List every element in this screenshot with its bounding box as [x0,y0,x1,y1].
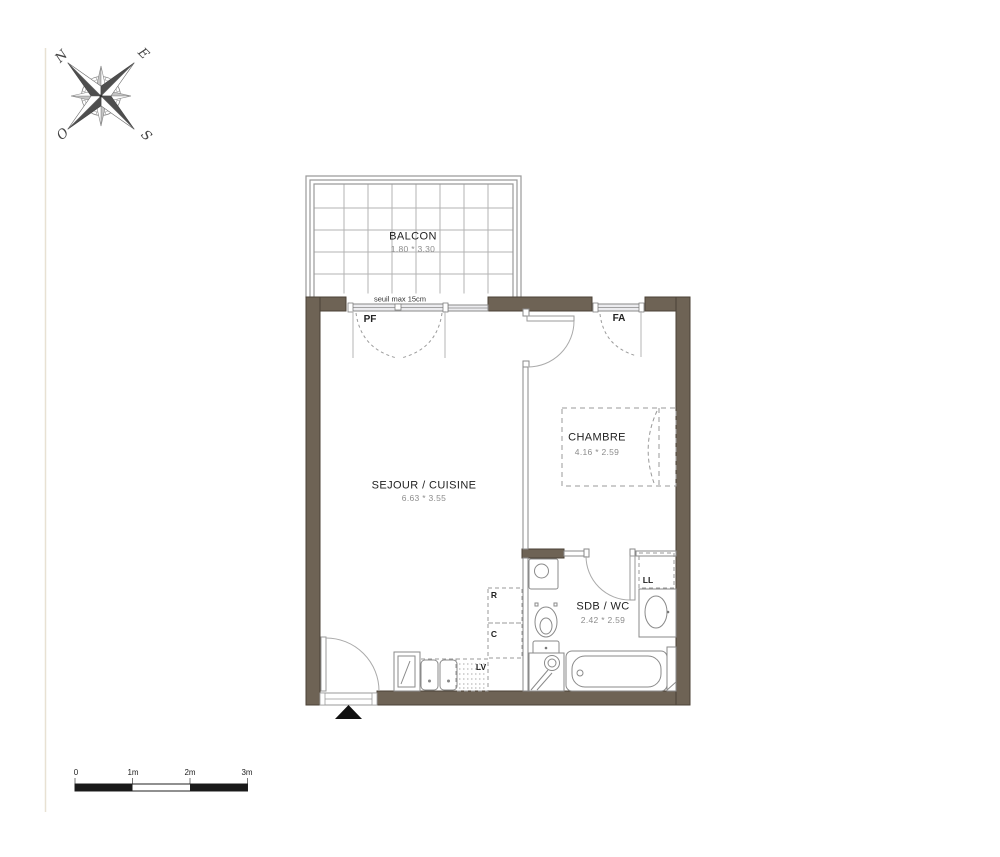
compass-east-label: E [134,45,152,63]
entrance-marker-icon [335,705,362,719]
floor-plan-page: N E S O BALCON 1.80 * 3.30 SEJOUR / CUIS… [0,0,1000,857]
living-room-name-label: SEJOUR / CUISINE [372,481,477,492]
window-pf-label: PF [364,315,377,325]
scale-tick-0-label: 0 [74,769,78,777]
kitchen-fixtures [394,588,522,691]
balcony-name-label: BALCON [389,232,437,243]
dishwasher-label: LV [476,663,486,672]
bathroom-dims-label: 2.42 * 2.59 [581,616,625,625]
balcony-dims-label: 1.80 * 3.30 [391,245,435,254]
scale-tick-2m-label: 2m [184,769,195,777]
living-room-dims-label: 6.63 * 3.55 [402,494,446,503]
fridge-label: R [491,591,497,600]
washing-machine-label: LL [643,576,653,585]
scale-tick-1m-label: 1m [127,769,138,777]
floor-plan-drawing: N E S O [0,0,1000,857]
scale-tick-3m-label: 3m [241,769,252,777]
doors [320,316,635,705]
compass-rose-icon: N E S O [14,4,194,184]
compass-south-label: S [137,127,154,144]
window-fa-label: FA [613,314,626,324]
threshold-note-label: seuil max 15cm [374,295,426,303]
bedroom-name-label: CHAMBRE [568,433,626,444]
scale-bar [75,778,248,791]
bathroom-name-label: SDB / WC [576,602,629,613]
bedroom-dims-label: 4.16 * 2.59 [575,448,619,457]
exterior-walls [306,297,690,705]
cooker-label: C [491,630,497,639]
